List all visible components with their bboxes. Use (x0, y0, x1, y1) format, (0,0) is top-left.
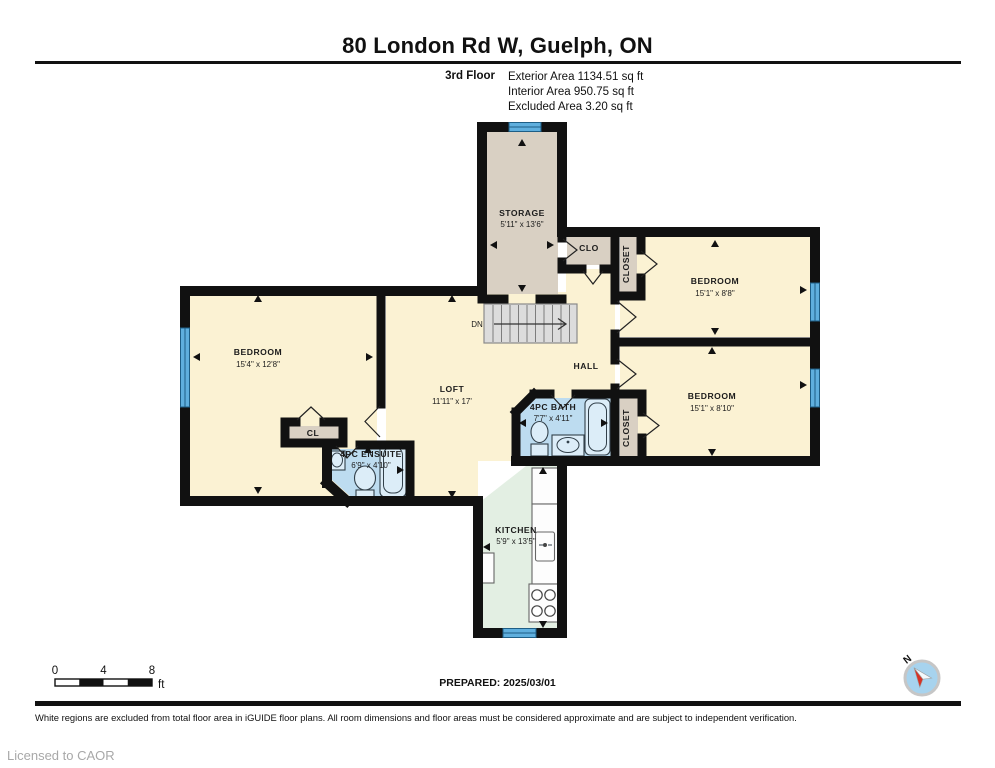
bedroom-ne-label: BEDROOM (691, 276, 739, 286)
bath-dims: 7'7" x 4'11" (534, 414, 573, 423)
storage-label: STORAGE (499, 208, 545, 218)
hall-label: HALL (574, 361, 599, 371)
loft-dims: 11'11" x 17' (432, 397, 472, 406)
disclaimer-text: White regions are excluded from total fl… (35, 712, 961, 723)
cl-label: CL (307, 428, 319, 438)
bath-toilet-icon (531, 422, 548, 443)
staircase (484, 304, 577, 343)
scale-tick-4: 4 (100, 665, 107, 677)
bedroom-se-dims: 15'1" x 8'10" (690, 404, 734, 413)
stove-icon (529, 584, 558, 622)
kitchen-counter-left (482, 553, 494, 583)
scale-tick-8: 8 (149, 665, 155, 677)
floor-plan: STORAGE 5'11" x 13'6" CLO CLOSET BEDROOM… (0, 0, 995, 768)
closet-bottom-label: CLOSET (621, 409, 631, 447)
stairs-dn-label: DN (471, 320, 483, 329)
bedroom-ne-dims: 15'1" x 8'8" (695, 289, 735, 298)
license-text: Licensed to CAOR (7, 748, 115, 763)
prepared-date: PREPARED: 2025/03/01 (0, 677, 995, 689)
bedroom-se-label: BEDROOM (688, 391, 736, 401)
footer-divider (35, 701, 961, 706)
ensuite-label: 4PC ENSUITE (340, 449, 402, 459)
closet-top-label: CLOSET (621, 245, 631, 283)
kitchen-dims: 5'9" x 13'5" (496, 537, 536, 546)
bedroom-west-dims: 15'4" x 12'8" (236, 360, 280, 369)
kitchen-label: KITCHEN (495, 525, 537, 535)
ensuite-dims: 6'9" x 4'10" (351, 461, 391, 470)
bedroom-se-floor (620, 346, 810, 457)
bedroom-ne-floor (620, 237, 810, 337)
storage-dims: 5'11" x 13'6" (500, 220, 543, 229)
loft-label: LOFT (440, 384, 465, 394)
bath-label: 4PC BATH (530, 402, 576, 412)
room-fills (190, 132, 810, 629)
clo-label: CLO (579, 243, 599, 253)
scale-tick-0: 0 (52, 665, 58, 677)
bedroom-west-label: BEDROOM (234, 347, 282, 357)
floorplan-page: 80 London Rd W, Guelph, ON 3rd Floor Ext… (0, 0, 995, 768)
